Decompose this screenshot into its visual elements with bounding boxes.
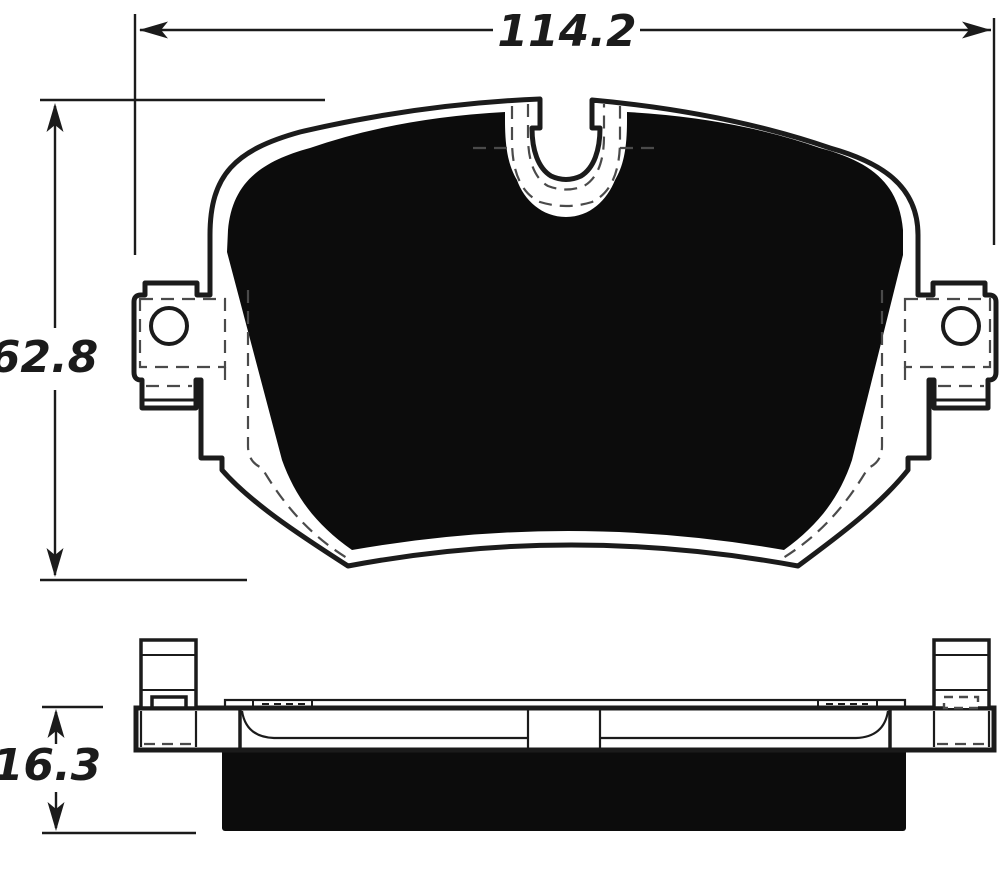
brake-pad-technical-drawing: 114.2 62.8 16.3 (0, 0, 1000, 877)
right-clip (934, 640, 989, 747)
plate-bar-inner (136, 711, 994, 748)
backing-plate-side (136, 708, 994, 750)
thickness-dimension: 16.3 (0, 707, 196, 833)
thickness-dimension-label: 16.3 (0, 740, 101, 791)
drawing-canvas: 114.2 62.8 16.3 (0, 0, 1000, 877)
friction-block-side (222, 748, 906, 831)
left-clip (141, 640, 196, 747)
front-view (134, 99, 996, 566)
right-ear-hole (943, 308, 979, 344)
side-profile-view (136, 640, 994, 831)
height-dimension-label: 62.8 (0, 332, 98, 383)
plate-side-details (240, 710, 890, 748)
left-ear-hole (151, 308, 187, 344)
width-dimension-label: 114.2 (497, 6, 636, 57)
